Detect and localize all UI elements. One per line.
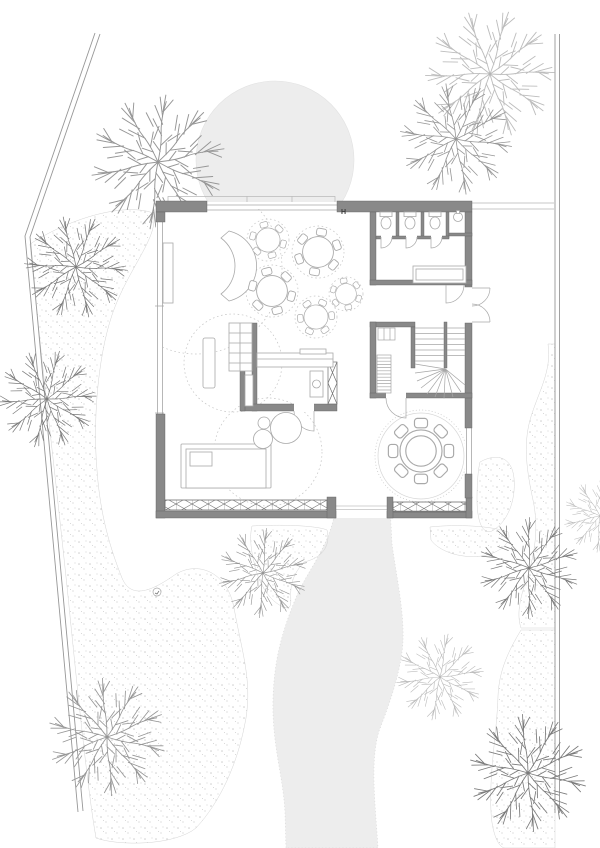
wall-closet-west bbox=[240, 370, 245, 411]
floor-plan-drawing: H bbox=[0, 0, 600, 848]
site-marker bbox=[153, 588, 161, 596]
entrance-door-leaf bbox=[472, 288, 490, 306]
tree-icon bbox=[551, 468, 600, 564]
toilet bbox=[380, 212, 392, 229]
pouf bbox=[254, 430, 273, 449]
wall-wc-west bbox=[370, 212, 376, 285]
pouf bbox=[271, 413, 302, 444]
kitchen-column bbox=[328, 362, 337, 404]
south-glazing bbox=[165, 500, 466, 512]
site-plan: H bbox=[0, 0, 600, 848]
wall-stair-north bbox=[370, 322, 415, 327]
toilet bbox=[404, 212, 416, 229]
wall-stair-west bbox=[370, 322, 376, 398]
dining-table bbox=[388, 418, 453, 483]
wall-stair-south bbox=[370, 393, 472, 398]
window-bench bbox=[163, 243, 173, 303]
planting-bed-east-lobe bbox=[477, 457, 514, 531]
section-marker-h: H bbox=[341, 209, 346, 216]
pillow bbox=[190, 452, 212, 466]
kitchen-shelf bbox=[229, 323, 252, 371]
entrance-door-leaf bbox=[472, 304, 490, 322]
toilet bbox=[429, 212, 441, 229]
pouf bbox=[258, 417, 270, 429]
wall-kitchen-south bbox=[241, 404, 337, 411]
planting-bed-south-right bbox=[430, 526, 509, 557]
glazing-strip-left bbox=[165, 500, 327, 510]
kitchen-counter bbox=[257, 353, 333, 367]
closet-door bbox=[245, 375, 253, 406]
kitchen-seat bbox=[203, 338, 215, 388]
building-layer: H bbox=[110, 182, 490, 518]
glazing-strip-right bbox=[393, 502, 466, 512]
